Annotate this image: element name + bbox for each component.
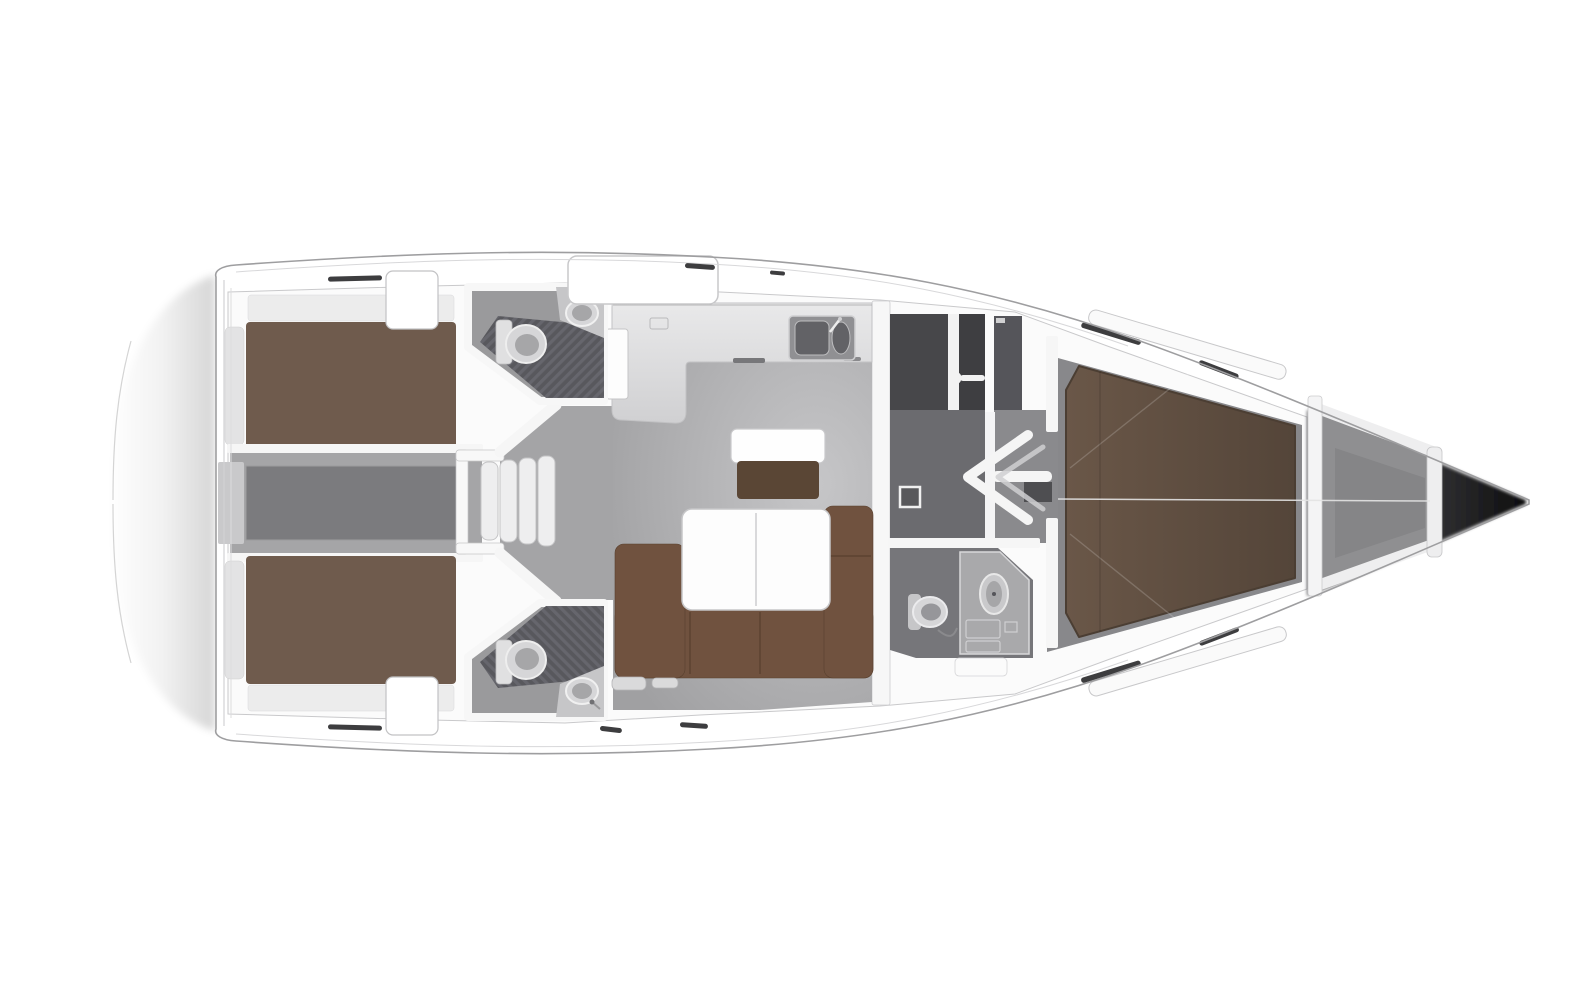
forward-head-wall bbox=[888, 538, 1040, 548]
anchor-locker bbox=[1308, 396, 1442, 596]
stern-shadow-shape bbox=[108, 275, 215, 731]
under-sofa-locker-1 bbox=[612, 677, 646, 690]
sofa-left-arm bbox=[615, 544, 685, 678]
side-table-top bbox=[731, 429, 825, 463]
yacht-floor-plan-page bbox=[0, 0, 1584, 1007]
aft-port-berth bbox=[246, 322, 456, 450]
aft-starboard-pillows bbox=[225, 561, 244, 679]
aft-starboard-toilet-bowl-inner bbox=[515, 648, 539, 670]
aft-starboard-basin-bowl bbox=[572, 683, 592, 699]
side-table-seat bbox=[737, 461, 819, 499]
engine-bay-inner bbox=[246, 466, 460, 540]
aft-starboard-berth bbox=[246, 556, 456, 684]
locker-latch-mark bbox=[996, 318, 1005, 323]
companionway-step-2 bbox=[500, 460, 517, 542]
aft-port-wardrobe bbox=[386, 271, 438, 329]
galley-locker-column bbox=[606, 329, 628, 399]
forward-toilet-bowl-inner bbox=[921, 604, 941, 621]
forward-cabin-wall-upper bbox=[1046, 336, 1058, 432]
instrument-pointer-arm bbox=[960, 375, 985, 381]
sink-basin-main bbox=[795, 321, 829, 355]
engine-compartment bbox=[218, 444, 483, 562]
forward-head-sill bbox=[955, 658, 1007, 676]
step-frame-left bbox=[456, 450, 468, 554]
engine-wall-top bbox=[227, 444, 483, 453]
aft-port-basin-bowl bbox=[572, 305, 592, 321]
companionway-step-4 bbox=[538, 456, 555, 546]
wet-locker bbox=[994, 316, 1022, 410]
forward-bulkhead bbox=[1308, 396, 1322, 596]
basin-drain bbox=[992, 592, 996, 596]
sink-faucet-base bbox=[838, 317, 842, 321]
companionway-step-1 bbox=[481, 462, 498, 540]
aft-port-toilet-bowl-inner bbox=[515, 334, 539, 356]
anchor-locker-forward-wall bbox=[1427, 447, 1442, 557]
nav-locker-dark bbox=[959, 314, 985, 410]
under-sofa-locker-2 bbox=[652, 678, 678, 688]
aft-starboard-wardrobe bbox=[386, 677, 438, 735]
aft-cabin-starboard bbox=[225, 556, 456, 735]
aft-port-pillows bbox=[225, 327, 244, 445]
aft-cabin-port bbox=[225, 271, 456, 450]
companionway-step-3 bbox=[519, 458, 536, 544]
forward-cabin-wall-lower bbox=[1046, 518, 1058, 648]
boat-floor-plan bbox=[0, 0, 1584, 1007]
sofa-right-back bbox=[824, 506, 873, 678]
counter-handle-1 bbox=[733, 358, 765, 363]
switch-panel bbox=[900, 487, 920, 507]
chart-table bbox=[890, 314, 948, 410]
stern-shadow bbox=[108, 275, 215, 731]
salon-nav-partition-wall bbox=[872, 301, 890, 705]
instrument-pointer-hub bbox=[949, 372, 962, 385]
nav-divider-wall bbox=[948, 314, 959, 410]
aft-starboard-faucet-base bbox=[590, 700, 595, 705]
